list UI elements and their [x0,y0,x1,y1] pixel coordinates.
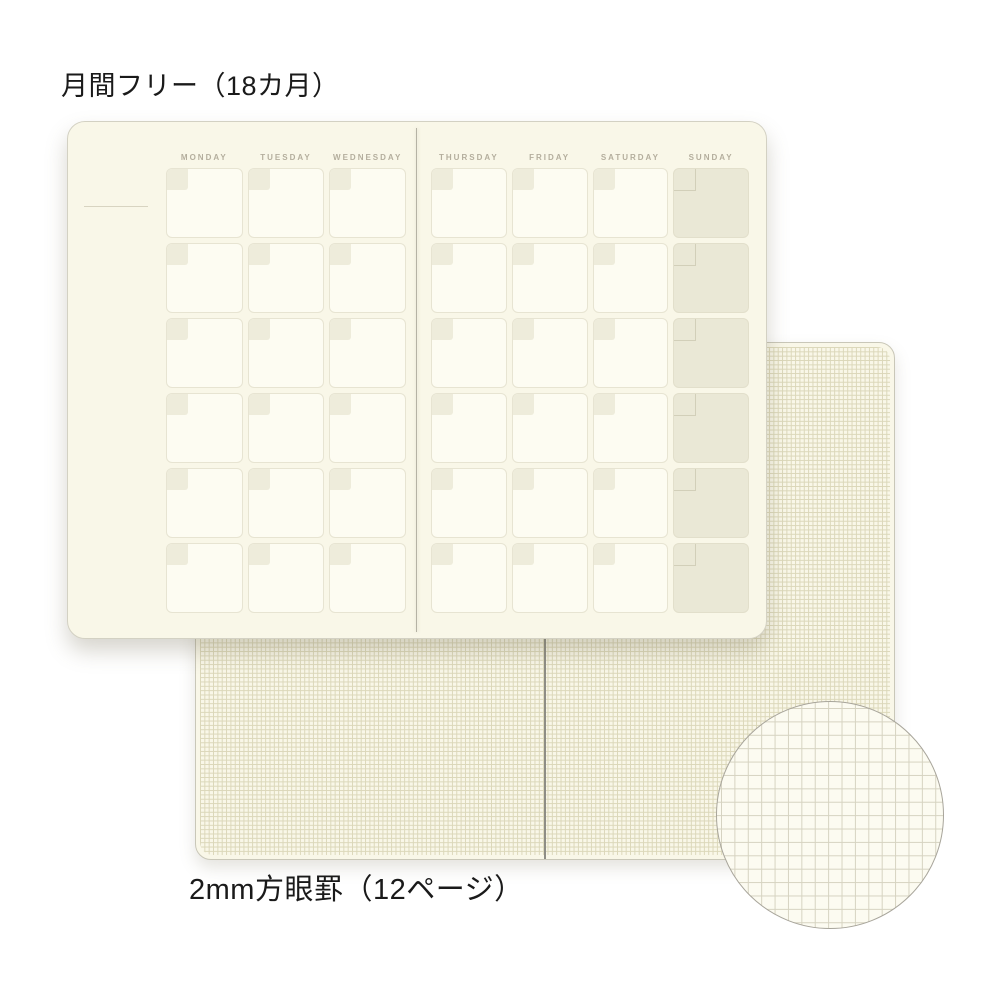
calendar-right-page-columns: THURSDAYFRIDAYSATURDAYSUNDAY [431,152,749,613]
date-corner-square [249,169,270,190]
grid-ruling-label: 2mm方眼罫（12ページ） [189,866,524,908]
calendar-cell [248,318,325,388]
date-corner-square [513,319,534,340]
day-column-sunday: SUNDAY [673,152,749,613]
calendar-cell [673,468,749,538]
day-header-saturday: SATURDAY [593,152,669,168]
date-corner-square [594,394,615,415]
calendar-cell [431,393,507,463]
date-corner-square [249,394,270,415]
monthly-calendar-spread: MONDAYTUESDAYWEDNESDAY THURSDAYFRIDAYSAT… [67,121,767,639]
calendar-left-page-columns: MONDAYTUESDAYWEDNESDAY [166,152,406,613]
calendar-cell [166,543,243,613]
date-corner-square [167,469,188,490]
calendar-cell [248,543,325,613]
day-header-thursday: THURSDAY [431,152,507,168]
date-corner-square [432,319,453,340]
calendar-cell [673,318,749,388]
date-corner-square [432,169,453,190]
date-corner-square [594,244,615,265]
date-corner-square [432,244,453,265]
date-corner-square [330,244,351,265]
calendar-cell [593,168,669,238]
calendar-cell [166,393,243,463]
day-column-tuesday: TUESDAY [248,152,325,613]
day-column-monday: MONDAY [166,152,243,613]
calendar-cell [673,393,749,463]
day-cells [512,168,588,613]
date-corner-square [249,244,270,265]
calendar-cell [248,393,325,463]
date-corner-square [594,544,615,565]
calendar-spread-gutter-line [416,128,417,632]
day-column-wednesday: WEDNESDAY [329,152,406,613]
date-corner-square [513,469,534,490]
day-header-friday: FRIDAY [512,152,588,168]
day-cells [593,168,669,613]
calendar-cell [166,318,243,388]
calendar-cell [431,243,507,313]
grid-magnifier-circle [716,701,944,929]
date-corner-square [594,169,615,190]
day-cells [431,168,507,613]
date-corner-square [330,544,351,565]
day-header-sunday: SUNDAY [673,152,749,168]
calendar-cell [329,468,406,538]
calendar-cell [593,318,669,388]
date-corner-square [167,169,188,190]
date-corner-square [513,244,534,265]
date-corner-square [167,244,188,265]
date-corner-square [167,394,188,415]
date-corner-square [330,169,351,190]
calendar-cell [593,468,669,538]
date-corner-square [432,394,453,415]
calendar-cell [593,393,669,463]
day-header-monday: MONDAY [166,152,243,168]
date-corner-square [167,319,188,340]
monthly-free-label: 月間フリー（18カ月） [61,64,340,103]
calendar-cell [512,543,588,613]
date-corner-square [594,319,615,340]
date-corner-square [249,319,270,340]
date-corner-square [432,469,453,490]
calendar-cell [512,468,588,538]
date-corner-square [674,469,696,491]
date-corner-square [674,319,696,341]
calendar-cell [512,393,588,463]
date-corner-square [167,544,188,565]
day-column-thursday: THURSDAY [431,152,507,613]
calendar-cell [166,243,243,313]
date-corner-square [249,469,270,490]
day-cells [673,168,749,613]
date-corner-square [674,169,696,191]
calendar-cell [329,543,406,613]
day-column-saturday: SATURDAY [593,152,669,613]
calendar-cell [593,243,669,313]
day-header-wednesday: WEDNESDAY [329,152,406,168]
day-cells [166,168,243,613]
day-column-friday: FRIDAY [512,152,588,613]
calendar-cell [673,168,749,238]
date-corner-square [432,544,453,565]
month-title-line [84,206,148,207]
date-corner-square [330,394,351,415]
calendar-cell [673,243,749,313]
calendar-cell [329,393,406,463]
date-corner-square [513,169,534,190]
calendar-cell [431,543,507,613]
date-corner-square [594,469,615,490]
date-corner-square [674,544,696,566]
calendar-cell [512,168,588,238]
date-corner-square [330,319,351,340]
calendar-cell [431,318,507,388]
calendar-cell [512,243,588,313]
calendar-cell [512,318,588,388]
calendar-cell [673,543,749,613]
day-cells [248,168,325,613]
calendar-cell [166,168,243,238]
date-corner-square [330,469,351,490]
calendar-cell [248,168,325,238]
calendar-cell [248,468,325,538]
date-corner-square [674,244,696,266]
calendar-cell [431,468,507,538]
calendar-cell [329,168,406,238]
calendar-cell [166,468,243,538]
day-header-tuesday: TUESDAY [248,152,325,168]
day-cells [329,168,406,613]
calendar-cell [431,168,507,238]
calendar-cell [593,543,669,613]
date-corner-square [674,394,696,416]
calendar-cell [329,243,406,313]
date-corner-square [513,394,534,415]
date-corner-square [513,544,534,565]
calendar-cell [248,243,325,313]
calendar-cell [329,318,406,388]
date-corner-square [249,544,270,565]
product-illustration: 月間フリー（18カ月） MONDAYTUESDAYWEDNESDAY THURS… [0,0,1000,1000]
